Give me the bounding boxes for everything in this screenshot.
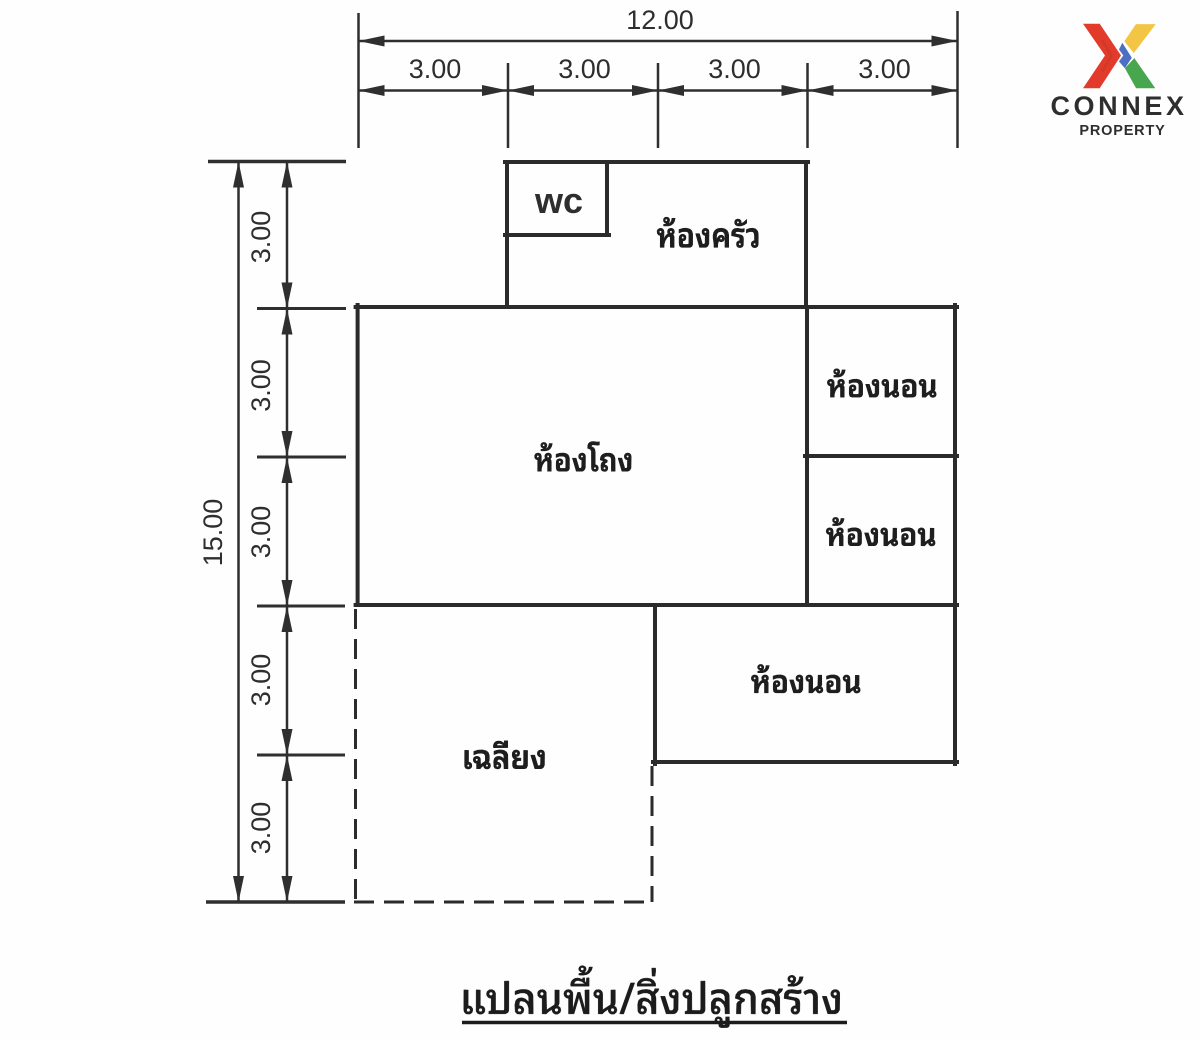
svg-text:wc: wc xyxy=(534,180,583,221)
svg-text:15.00: 15.00 xyxy=(198,499,228,567)
svg-text:3.00: 3.00 xyxy=(246,211,276,264)
svg-text:3.00: 3.00 xyxy=(246,506,276,559)
svg-text:12.00: 12.00 xyxy=(626,5,694,35)
svg-text:3.00: 3.00 xyxy=(708,54,761,84)
svg-text:3.00: 3.00 xyxy=(246,802,276,855)
svg-text:3.00: 3.00 xyxy=(409,54,462,84)
svg-text:PROPERTY: PROPERTY xyxy=(1079,123,1165,139)
svg-text:3.00: 3.00 xyxy=(858,54,911,84)
svg-text:3.00: 3.00 xyxy=(246,654,276,707)
svg-text:CONNEX: CONNEX xyxy=(1050,91,1187,121)
svg-text:3.00: 3.00 xyxy=(558,54,611,84)
svg-text:3.00: 3.00 xyxy=(246,359,276,412)
